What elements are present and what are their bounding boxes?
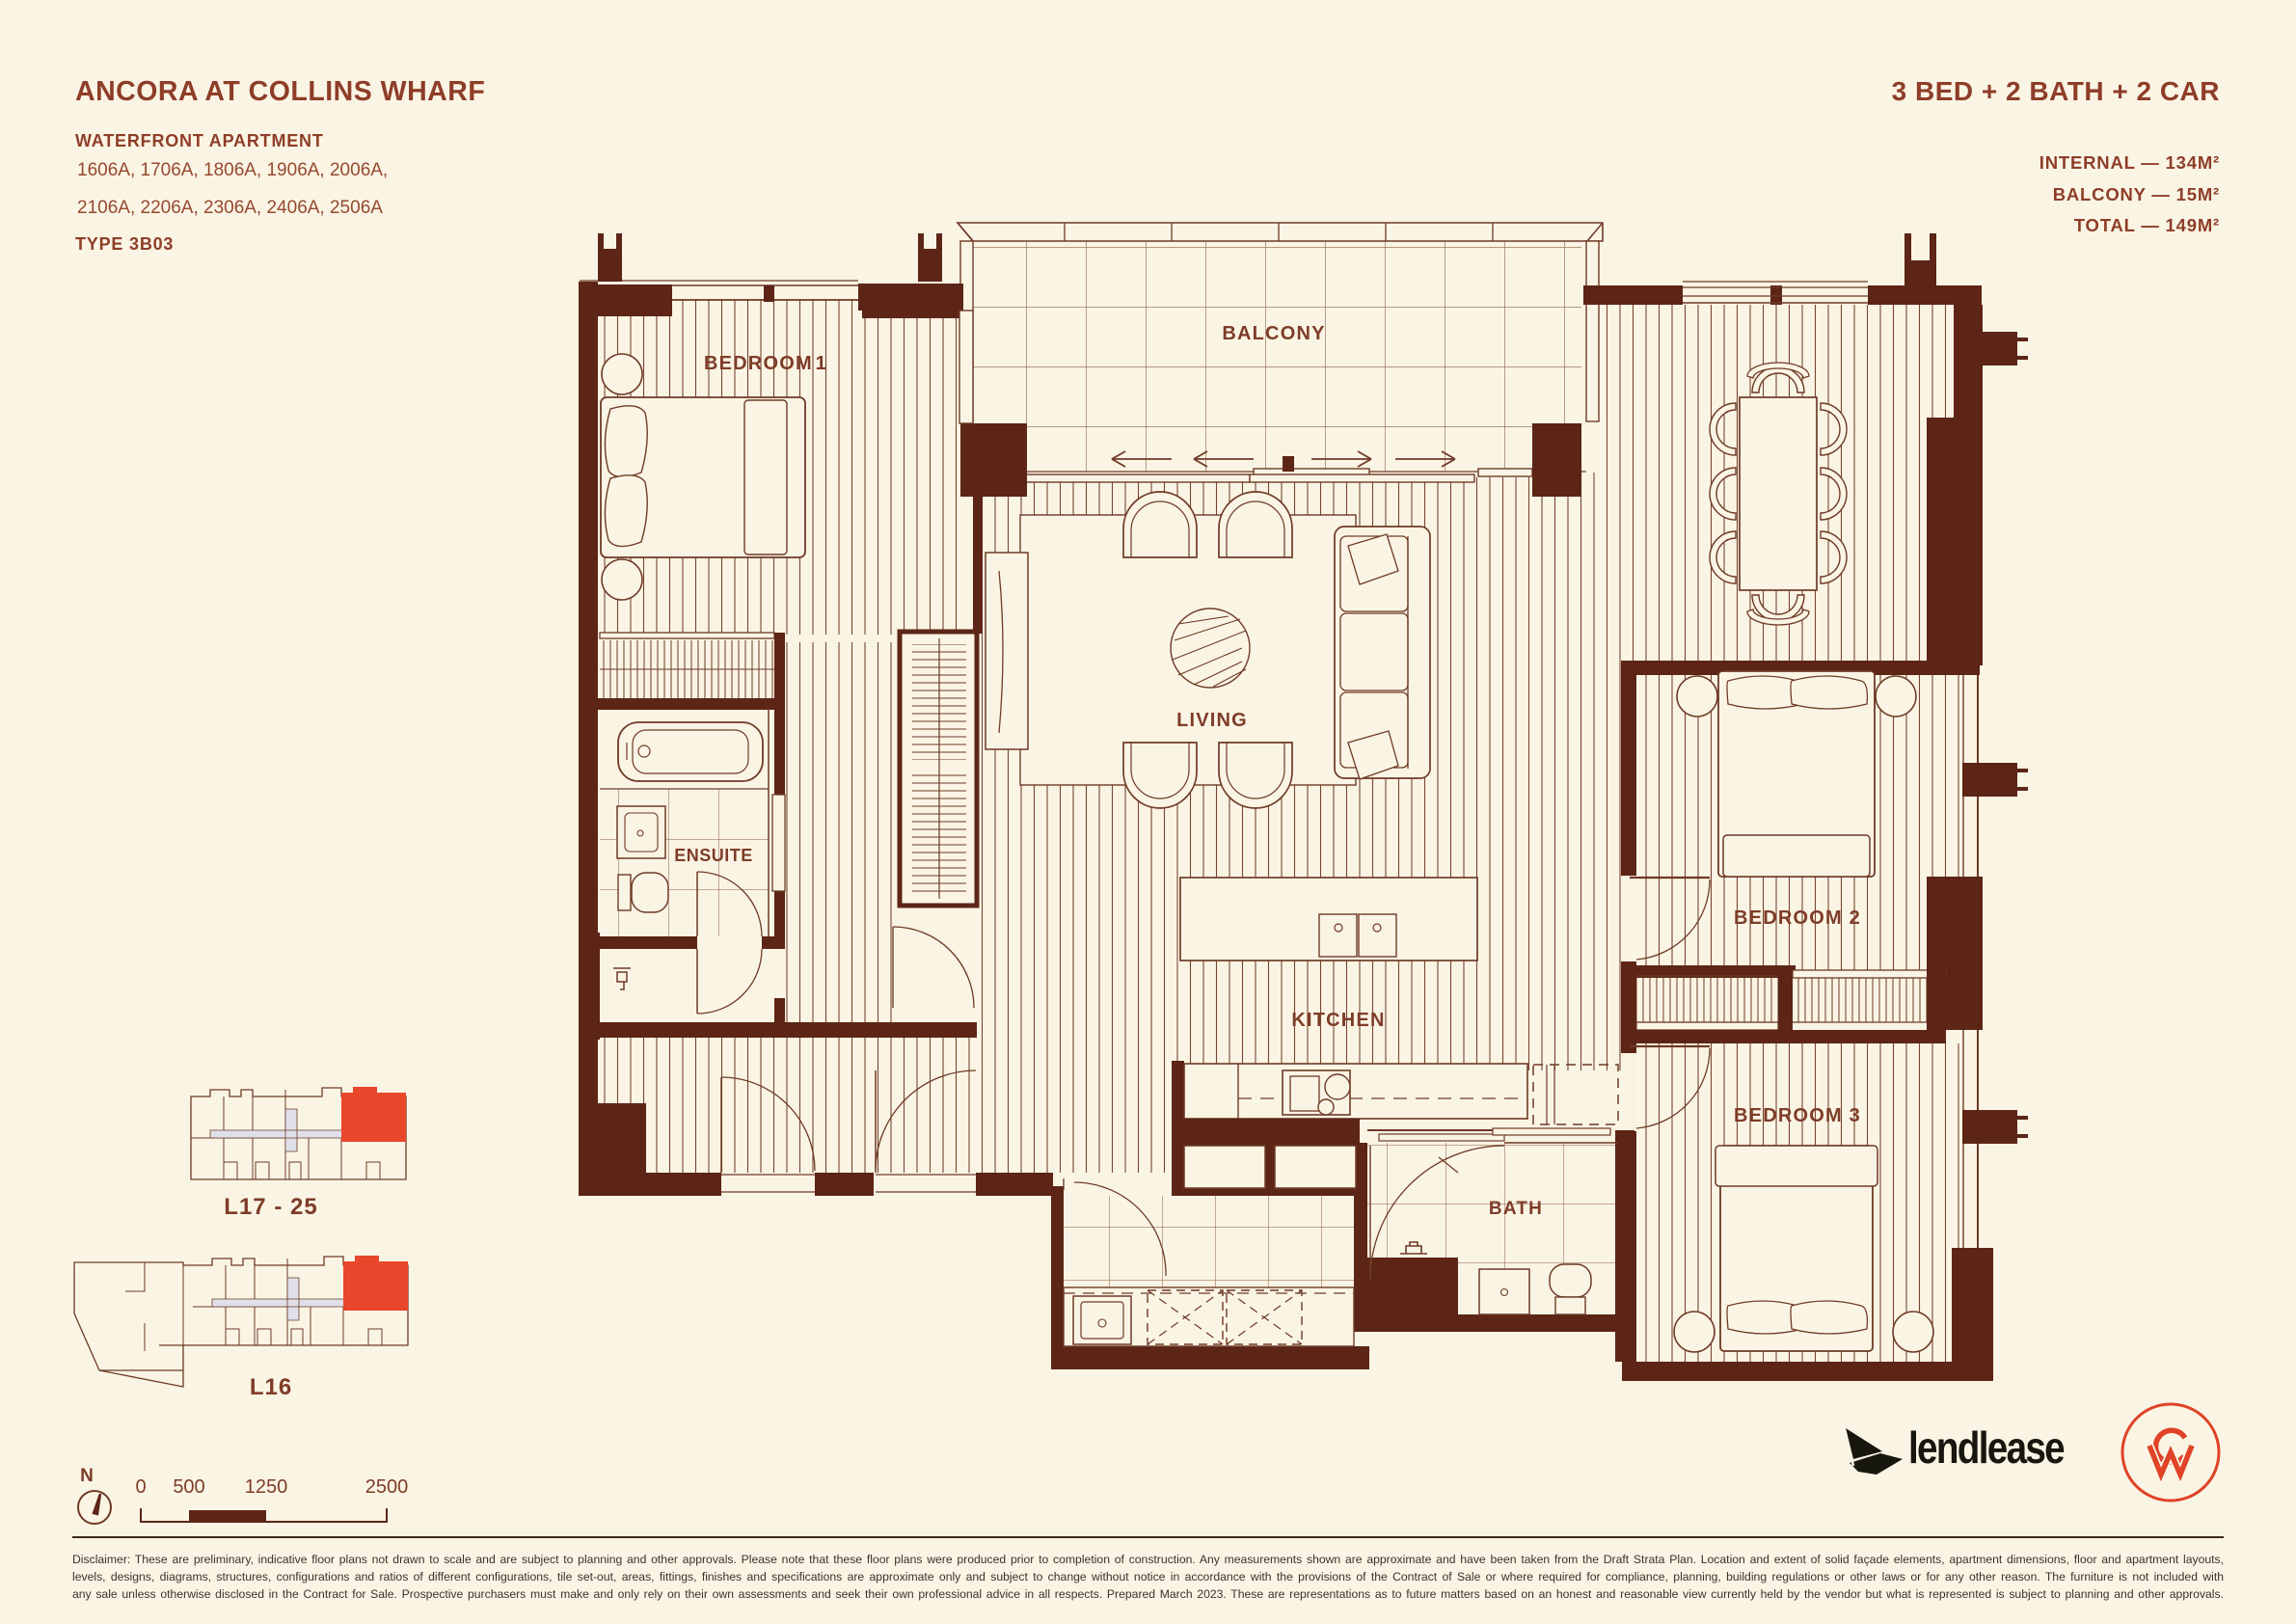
svg-text:L17 - 25: L17 - 25 [224, 1194, 317, 1220]
svg-text:2500: 2500 [365, 1476, 409, 1498]
svg-text:500: 500 [173, 1476, 204, 1498]
svg-text:lendlease: lendlease [1908, 1422, 2065, 1473]
svg-text:0: 0 [135, 1476, 146, 1498]
svg-text:1250: 1250 [245, 1476, 288, 1498]
svg-text:N: N [80, 1466, 94, 1486]
svg-text:L16: L16 [250, 1374, 292, 1400]
